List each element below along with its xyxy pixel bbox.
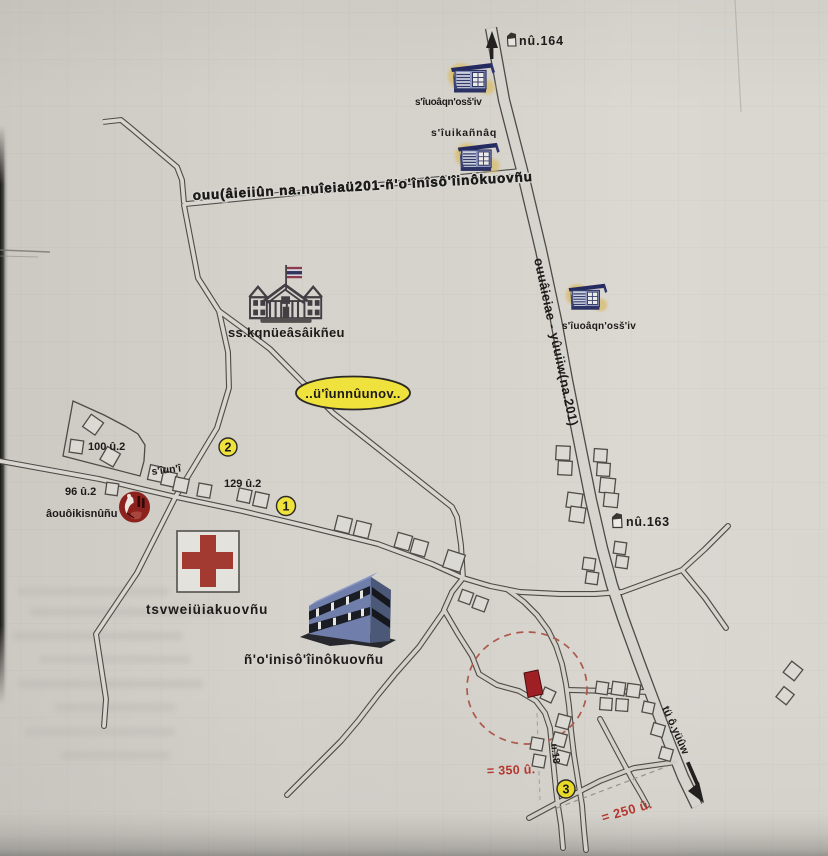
svg-text:129 û.2: 129 û.2 xyxy=(224,478,261,490)
svg-text:nû.163: nû.163 xyxy=(626,515,670,529)
svg-text:tsvweiüiakuovñu: tsvweiüiakuovñu xyxy=(146,602,268,617)
svg-text:nû.164: nû.164 xyxy=(519,34,564,48)
svg-text:ñ'o'inisô'îinôkuovñu: ñ'o'inisô'îinôkuovñu xyxy=(244,652,384,667)
svg-text:s'îuoâqn'osš'iv: s'îuoâqn'osš'iv xyxy=(562,321,636,332)
svg-text:..ü'îunnûunov..: ..ü'îunnûunov.. xyxy=(305,386,400,401)
svg-text:96 û.2: 96 û.2 xyxy=(65,486,96,498)
svg-text:100 û.2: 100 û.2 xyxy=(88,441,125,453)
svg-text:ss.kqnüeâsâikñeu: ss.kqnüeâsâikñeu xyxy=(228,325,345,340)
svg-text:s'îuoâqn'osš'iv: s'îuoâqn'osš'iv xyxy=(415,97,482,108)
svg-text:s'îuikañnâq: s'îuikañnâq xyxy=(431,127,497,139)
svg-text:2: 2 xyxy=(225,441,232,455)
svg-text:âouôikisnûñu: âouôikisnûñu xyxy=(46,508,118,520)
svg-text:3: 3 xyxy=(563,783,570,797)
svg-text:1: 1 xyxy=(283,500,290,514)
svg-text:= 350 û.: = 350 û. xyxy=(487,762,536,778)
